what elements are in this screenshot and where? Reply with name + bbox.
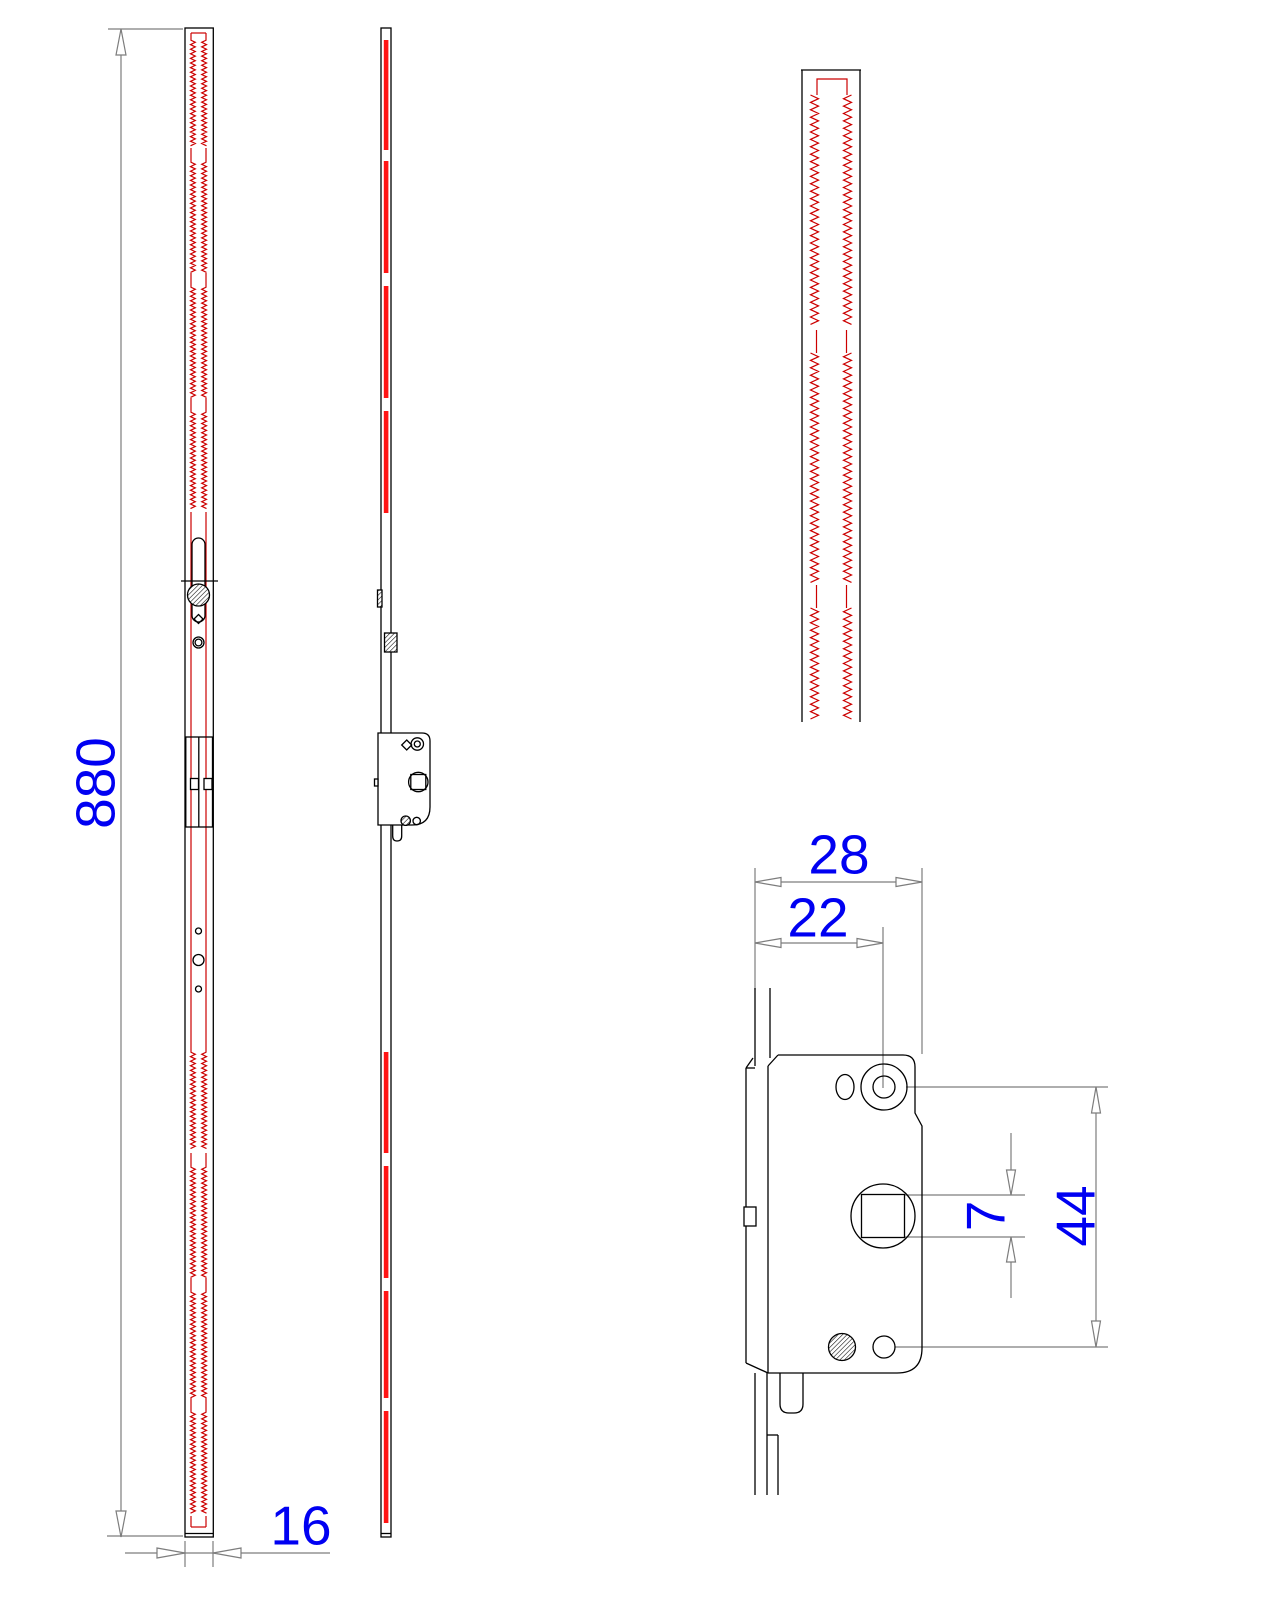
hatched-block xyxy=(385,633,398,652)
screw-icon xyxy=(829,1334,856,1361)
detail-gearbox-view xyxy=(744,988,922,1495)
mushroom-cam-icon xyxy=(188,584,210,606)
arrow-left-icon xyxy=(755,939,781,948)
spindle-square-hole xyxy=(862,1195,905,1238)
side-gearbox xyxy=(375,733,431,841)
screw-hole xyxy=(193,955,204,966)
dimension-spindle-label: 7 xyxy=(959,1201,1014,1232)
oval-hole xyxy=(836,1075,854,1100)
screw-hole xyxy=(196,986,202,992)
arrow-right-icon xyxy=(857,939,883,948)
drive-tab xyxy=(393,825,402,841)
arrow-left-icon xyxy=(755,878,781,887)
arrow-down-icon xyxy=(1007,1170,1016,1195)
top-screw-boss xyxy=(861,1064,907,1110)
arrow-down-icon xyxy=(1092,1321,1101,1347)
arrow-up-icon xyxy=(1092,1087,1101,1113)
dimension-width-label: 16 xyxy=(270,1499,331,1554)
arrow-down-icon xyxy=(116,1511,126,1537)
cam-slot xyxy=(192,538,205,622)
arrow-right-icon xyxy=(157,1548,185,1558)
drive-tab xyxy=(780,1373,803,1413)
screw-icon xyxy=(401,816,410,825)
dimension-length-label: 880 xyxy=(69,737,124,829)
screw-hole xyxy=(196,928,202,934)
hatched-block xyxy=(378,590,383,607)
dimension-case-depth-label: 28 xyxy=(808,828,869,883)
front-connector-joint xyxy=(186,737,213,827)
bottom-screw-hole xyxy=(873,1336,895,1358)
detail-rack-view xyxy=(801,70,861,722)
spindle-hub xyxy=(851,1184,915,1248)
arrow-right-icon xyxy=(896,878,922,887)
dimension-backset-label: 22 xyxy=(787,891,848,946)
arrow-up-icon xyxy=(1007,1237,1016,1262)
faceplate-notch xyxy=(744,1207,756,1226)
drawing-linework xyxy=(0,0,1280,1600)
dimension-22-lines xyxy=(755,927,883,1088)
side-view-bar xyxy=(375,28,431,1537)
arrow-left-icon xyxy=(213,1548,241,1558)
detail-rack-red xyxy=(811,79,852,719)
cad-drawing-canvas: 880 16 28 22 7 44 xyxy=(0,0,1280,1600)
front-view-bar xyxy=(181,28,218,1537)
arrow-up-icon xyxy=(116,29,126,55)
dimension-hole-spacing-label: 44 xyxy=(1049,1185,1104,1246)
